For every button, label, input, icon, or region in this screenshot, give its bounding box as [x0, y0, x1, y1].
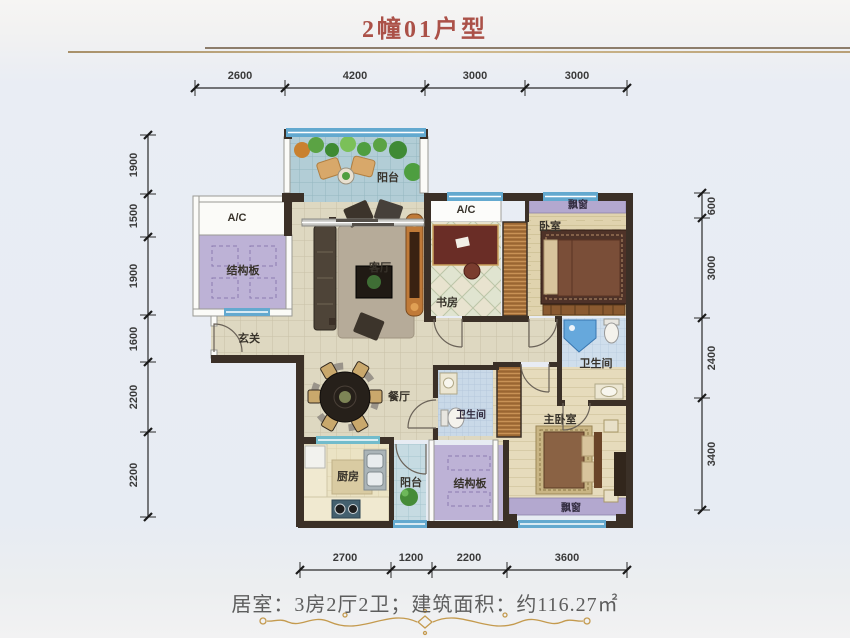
- headboard: [594, 432, 602, 488]
- dim-left-5: 2200: [128, 463, 140, 487]
- dim-left-0: 1900: [128, 153, 140, 177]
- pillows: [544, 240, 558, 294]
- fridge: [305, 446, 325, 468]
- potted-plant: [404, 163, 422, 181]
- room-label-slab-bottom: 结构板: [453, 476, 488, 490]
- window-balcony-bottom: [393, 520, 427, 528]
- dim-right-1: 3000: [706, 256, 718, 280]
- dim-left-4: 2200: [128, 385, 140, 409]
- dim-right-2: 2400: [706, 346, 718, 370]
- dim-bottom-0: 2700: [333, 552, 357, 564]
- floor-plan-page: 2幢01户型: [0, 0, 850, 638]
- sliding-door: [302, 219, 424, 226]
- room-label-ac-left: A/C: [228, 212, 247, 224]
- room-label-balcony-bottom: 阳台: [400, 475, 422, 489]
- dining-chair: [308, 390, 321, 403]
- room-label-bath-main: 卫生间: [580, 356, 613, 370]
- dim-left-2: 1900: [128, 264, 140, 288]
- media-cabinet: [614, 452, 626, 496]
- dimension-top: 2600 4200 3000 3000: [191, 70, 631, 96]
- dining-chair: [369, 390, 382, 403]
- room-label-living: 客厅: [368, 260, 391, 274]
- toilet: [605, 323, 619, 343]
- dim-bottom-2: 2200: [457, 552, 481, 564]
- room-label-foyer: 玄关: [238, 331, 260, 345]
- pillow: [582, 436, 594, 456]
- nightstand: [604, 420, 618, 432]
- dim-left-3: 1600: [128, 327, 140, 351]
- bedroom-furniture: [541, 230, 627, 315]
- window-slab-left: [224, 308, 270, 316]
- room-label-bay-top: 飘窗: [568, 198, 588, 211]
- bed: [558, 240, 620, 296]
- desk-chair: [464, 263, 480, 279]
- dim-top-1: 4200: [343, 70, 367, 82]
- dimension-bottom: 2700 1200 2200 3600: [296, 552, 631, 578]
- wardrobe: [497, 366, 521, 437]
- room-label-slab-left: 结构板: [226, 263, 261, 277]
- dim-bottom-1: 1200: [399, 552, 423, 564]
- wardrobe: [503, 222, 527, 316]
- window-ac-right: [447, 192, 503, 201]
- dim-top-0: 2600: [228, 70, 252, 82]
- room-label-bay-bottom: 飘窗: [561, 501, 581, 514]
- dim-right-0: 600: [706, 197, 718, 215]
- floor-plan-drawing: 阳台 A/C 结构板 客厅 A/C 飘窗 卧室 书房 玄关 卫生间 餐厅 卫生间…: [0, 0, 850, 638]
- room-label-master: 主卧室: [544, 412, 577, 426]
- room-label-balcony-top: 阳台: [377, 170, 399, 184]
- dim-bottom-3: 3600: [555, 552, 579, 564]
- window-bay-bottom: [518, 520, 606, 528]
- room-label-kitchen: 厨房: [337, 469, 359, 483]
- dim-left-1: 1500: [128, 204, 140, 228]
- dim-top-2: 3000: [463, 70, 487, 82]
- dim-right-3: 3400: [706, 442, 718, 466]
- room-label-dining: 餐厅: [387, 389, 410, 403]
- room-label-ac-right: A/C: [457, 204, 476, 216]
- potted-plant: [389, 141, 407, 159]
- dimension-left: 1900 1500 1900 1600 2200 2200: [128, 131, 156, 521]
- dimension-right: 600 3000 2400 3400: [694, 189, 718, 514]
- room-label-bedroom: 卧室: [539, 219, 561, 233]
- room-label-bath-second: 卫生间: [456, 408, 486, 421]
- bed: [544, 432, 584, 488]
- flower-pot: [294, 142, 310, 158]
- window-balcony-railing: [286, 128, 426, 137]
- dim-top-3: 3000: [565, 70, 589, 82]
- pillow: [582, 462, 594, 482]
- room-label-study: 书房: [436, 295, 458, 309]
- window-kitchen: [316, 436, 380, 444]
- balcony-bottom-furniture: [400, 488, 418, 506]
- unit-summary: 居室：3房2厅2卫；建筑面积：约116.27㎡: [0, 588, 850, 617]
